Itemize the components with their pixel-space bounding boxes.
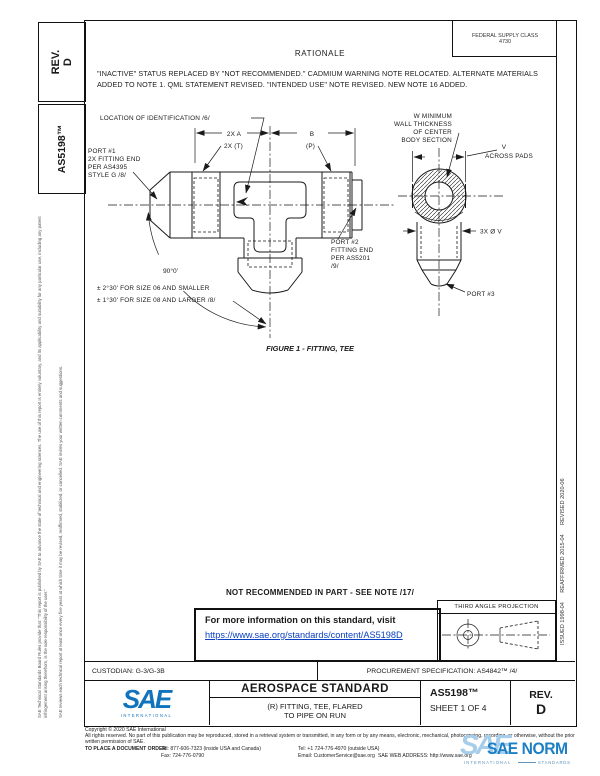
projection-title: THIRD ANGLE PROJECTION xyxy=(438,601,555,614)
rev-value: D xyxy=(536,701,546,717)
tel-inside: Tel: 877-606-7323 (inside USA and Canada… xyxy=(161,746,261,752)
centerlines xyxy=(108,126,503,338)
figure-labels: LOCATION OF IDENTIFICATION /6/ 2X A B 2X… xyxy=(88,113,533,304)
wall-label-4: BODY SECTION xyxy=(401,137,452,144)
rationale-heading: RATIONALE xyxy=(84,49,556,58)
port1-label-1: PORT #1 xyxy=(88,148,116,155)
third-angle-projection-icon xyxy=(438,614,554,656)
wall-label-3: OF CENTER xyxy=(413,129,452,136)
angle-tol2-label: ± 1°30' FOR SIZE 08 AND LARGER /8/ xyxy=(97,296,216,304)
projection-box: THIRD ANGLE PROJECTION xyxy=(437,600,556,661)
standard-title-line1: (R) FITTING, TEE, FLARED xyxy=(210,702,420,711)
v-dim-label: V xyxy=(502,144,507,151)
wall-label-1: W MINIMUM xyxy=(414,113,452,120)
rev-side-box: REV. D xyxy=(38,22,86,102)
rev-cell: REV. D xyxy=(511,681,571,725)
watermark-tagline: STANDARDS xyxy=(536,760,573,765)
watermark-subtitle: INTERNATIONAL xyxy=(464,760,512,765)
across-pads-label: ACROSS PADS xyxy=(485,153,533,160)
sae-board-rules-disclaimer: SAE Technical Standards Board Rules prov… xyxy=(37,193,50,718)
custodian-cell: CUSTODIAN: G-3/G-3B xyxy=(84,662,318,680)
sae-logo-subtext: INTERNATIONAL xyxy=(121,713,172,718)
wall-label-2: WALL THICKNESS xyxy=(394,121,452,128)
revision-history: ISSUED 1998-04 REAFFIRMED 2015-04 REVISE… xyxy=(560,389,566,645)
procurement-cell: PROCUREMENT SPECIFICATION: AS4842™ /4/ xyxy=(318,662,566,680)
title-block-row-main: SAE INTERNATIONAL AEROSPACE STANDARD (R)… xyxy=(84,680,575,725)
dim-p-label: (P) xyxy=(306,143,315,150)
angle-label: 90°0' xyxy=(163,267,178,275)
doc-number-side-label: AS5198™ xyxy=(56,125,68,173)
port1-label-4: STYLE G /8/ xyxy=(88,172,126,179)
watermark-title: SAE NORM xyxy=(487,739,568,759)
fax-number: Fax: 724-776-0790 xyxy=(161,753,204,759)
figure-1-drawing: LOCATION OF IDENTIFICATION /6/ 2X A B 2X… xyxy=(85,98,557,360)
standard-title-cell: AEROSPACE STANDARD (R) FITTING, TEE, FLA… xyxy=(210,681,421,725)
sae-logo-cell: SAE INTERNATIONAL xyxy=(84,681,210,725)
rev-side-label: REV. xyxy=(50,50,62,75)
tee-front-view xyxy=(150,172,362,293)
sheet-number: SHEET 1 OF 4 xyxy=(430,703,510,713)
sae-logo: SAE xyxy=(123,688,170,711)
port2-label-4: /9/ xyxy=(331,263,339,270)
more-info-box: For more information on this standard, v… xyxy=(194,608,441,662)
order-label: TO PLACE A DOCUMENT ORDER: xyxy=(85,746,168,752)
port3-label: PORT #3 xyxy=(467,291,495,298)
standard-title-line2: TO PIPE ON RUN xyxy=(210,711,420,720)
procurement-text: PROCUREMENT SPECIFICATION: AS4842™ /4/ xyxy=(367,668,517,675)
standard-info-link[interactable]: https://www.sae.org/standards/content/AS… xyxy=(205,630,403,640)
port2-label-3: PER AS5201 xyxy=(331,255,371,262)
angle-tol1-label: ± 2°30' FOR SIZE 06 AND SMALLER xyxy=(97,284,210,292)
standard-type: AEROSPACE STANDARD xyxy=(210,681,420,698)
not-recommended-notice: NOT RECOMMENDED IN PART - SEE NOTE /17/ xyxy=(150,588,490,597)
rev-side-value: D xyxy=(62,58,74,66)
doc-number-cell: AS5198™ SHEET 1 OF 4 xyxy=(421,681,511,725)
email-address: Email: CustomerService@sae.org xyxy=(298,753,375,759)
doc-number-side-box: AS5198™ xyxy=(38,104,86,194)
figure-caption: FIGURE 1 - FITTING, TEE xyxy=(225,344,395,353)
rev-label: REV. xyxy=(529,689,553,701)
title-block-row-custodian: CUSTODIAN: G-3/G-3B PROCUREMENT SPECIFIC… xyxy=(84,661,575,680)
fsc-value: 4730 xyxy=(499,39,511,45)
location-id-label: LOCATION OF IDENTIFICATION /6/ xyxy=(100,115,210,122)
custodian-text: CUSTODIAN: G-3/G-3B xyxy=(92,668,165,675)
dia-v-label: 3X Ø V xyxy=(480,229,502,236)
rationale-text: "INACTIVE" STATUS REPLACED BY "NOT RECOM… xyxy=(97,69,552,91)
sae-norm-watermark: SAE SAE NORM INTERNATIONAL STANDARDS xyxy=(460,736,598,774)
more-info-text: For more information on this standard, v… xyxy=(205,615,430,625)
doc-number: AS5198™ xyxy=(430,687,510,699)
tel-outside: Tel: +1 724-776-4970 (outside USA) xyxy=(298,746,379,752)
port1-label-2: 2X FITTING END xyxy=(88,156,141,163)
sae-review-disclaimer: SAE reviews each technical report at lea… xyxy=(58,193,63,718)
web-address: SAE WEB ADDRESS: http://www.sae.org xyxy=(378,753,472,759)
port2-label-1: PORT #2 xyxy=(331,239,359,246)
dim-2xa-label: 2X A xyxy=(227,131,242,138)
port1-label-3: PER AS4395 xyxy=(88,164,128,171)
dim-b-label: B xyxy=(310,131,314,138)
port2-label-2: FITTING END xyxy=(331,247,374,254)
dim-2xt-label: 2X (T) xyxy=(224,143,243,150)
